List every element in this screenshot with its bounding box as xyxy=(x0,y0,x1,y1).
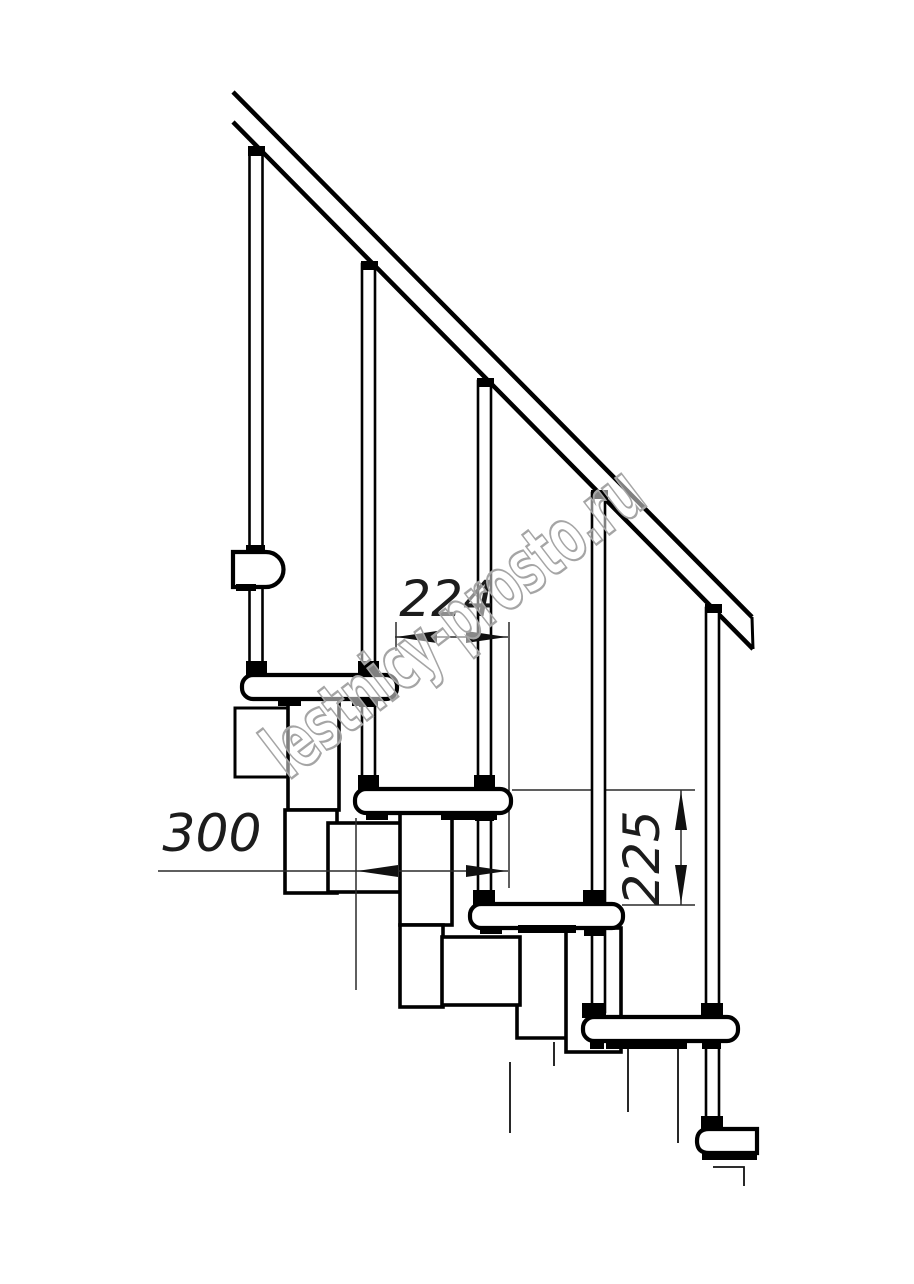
tread0-foot xyxy=(236,584,256,591)
rail-connector-3 xyxy=(477,378,494,387)
tread4-foot xyxy=(606,1041,620,1049)
tread4-module-cap xyxy=(618,1040,687,1049)
rail-connector-1 xyxy=(248,146,265,156)
tread2-foot xyxy=(441,812,497,820)
tread3-under-socket xyxy=(584,928,605,936)
tread3-foot xyxy=(480,927,502,934)
tread2-foot xyxy=(366,812,388,820)
spine-square-2 xyxy=(442,937,520,1005)
rail-connector-2 xyxy=(361,261,378,270)
tread3-baluster-socket xyxy=(583,890,606,905)
tread4-under-socket xyxy=(702,1041,721,1049)
dimension-225-value: 225 xyxy=(613,810,671,905)
tread3-foot xyxy=(518,925,576,933)
handrail-end-cap xyxy=(752,617,753,649)
spine-square-1 xyxy=(328,823,404,892)
technical-drawing-canvas: 224 300 225 lestnicy-prosto.ru xyxy=(0,0,914,1284)
baluster-1 xyxy=(250,154,263,670)
tread4-baluster-socket xyxy=(701,1003,723,1018)
tread-3 xyxy=(470,904,623,928)
tread4-foot xyxy=(590,1041,604,1049)
tread5-baluster-socket xyxy=(701,1116,723,1130)
tread5-foot xyxy=(702,1152,714,1160)
staircase-drawing: 224 300 225 lestnicy-prosto.ru xyxy=(0,0,914,1280)
tread4-baluster-socket xyxy=(582,1003,606,1018)
spine-column-2 xyxy=(400,811,452,925)
dimension-300-value: 300 xyxy=(162,804,261,864)
tread3-baluster-socket xyxy=(473,890,495,905)
rail-connector-5 xyxy=(705,604,722,613)
tread5-module-cap xyxy=(714,1151,757,1160)
tread2-baluster-socket xyxy=(474,775,495,790)
tread1-baluster-socket xyxy=(246,661,267,676)
tread2-baluster-socket xyxy=(358,775,379,790)
tread-5-cut xyxy=(697,1129,757,1153)
tread-4 xyxy=(583,1017,738,1041)
tread-0-stub xyxy=(233,552,284,587)
tread0-connector xyxy=(246,545,265,554)
spine-subbox-2 xyxy=(400,925,443,1007)
tread-2 xyxy=(355,789,511,813)
